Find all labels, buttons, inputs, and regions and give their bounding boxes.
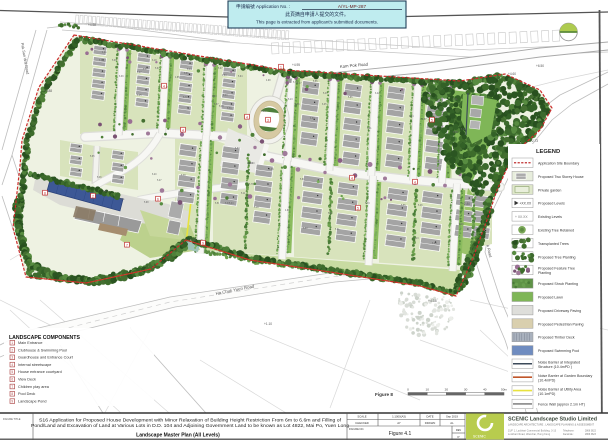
svg-text:SCENIC: SCENIC [473,435,486,439]
svg-text:LANDSCAPE ARCHITECTURE . LANDS: LANDSCAPE ARCHITECTURE . LANDSCAPE PLANN… [508,424,595,427]
svg-text:P: P [457,435,459,439]
svg-text:5.09: 5.09 [112,60,117,62]
svg-text:6.39: 6.39 [119,76,124,78]
svg-text:5.87: 5.87 [422,119,427,121]
svg-text:4.90: 4.90 [285,210,290,212]
svg-text:House entrance courtyard: House entrance courtyard [18,370,62,374]
svg-text:3: 3 [267,118,269,122]
svg-text:1: 1 [280,65,282,69]
svg-text:Proposed Levels: Proposed Levels [538,202,565,206]
svg-text:4: 4 [414,180,416,184]
svg-text:5.83: 5.83 [103,191,108,193]
svg-text:5.73: 5.73 [365,203,370,205]
svg-text:DRAWN: DRAWN [425,421,435,425]
svg-text:5.60: 5.60 [303,228,308,230]
svg-text:此頁摘自申請人提交的文件。: 此頁摘自申請人提交的文件。 [285,11,349,18]
svg-text:2866 3623: 2866 3623 [585,434,597,436]
svg-text:Structure (10.4mPD ): Structure (10.4mPD ) [538,365,572,369]
svg-text:0: 0 [407,388,409,392]
svg-text:6.22: 6.22 [375,93,380,95]
svg-text:1:1000(A3): 1:1000(A3) [392,415,406,419]
svg-text:5.67: 5.67 [155,68,160,70]
svg-text:5.31: 5.31 [335,229,340,231]
svg-text:Main Entrance: Main Entrance [18,341,42,345]
svg-text:Figure 8: Figure 8 [375,392,393,397]
svg-text:50m: 50m [501,388,507,392]
svg-text:Existing Levels: Existing Levels [538,215,562,219]
svg-text:6.05: 6.05 [99,60,104,62]
svg-text:DATE: DATE [426,415,433,419]
svg-text:Private garden: Private garden [538,188,561,192]
svg-text:Pool Deck: Pool Deck [18,392,35,396]
svg-text:Application Site Boundary: Application Site Boundary [538,162,579,166]
svg-text:4.85: 4.85 [175,77,180,79]
svg-text:CHECKED: CHECKED [355,421,369,425]
svg-text:4: 4 [163,84,165,88]
svg-text:5.63: 5.63 [235,148,240,150]
svg-text:4.98: 4.98 [266,80,271,82]
svg-text:5.32: 5.32 [461,129,466,131]
svg-text:10: 10 [425,388,429,392]
svg-text:5.68: 5.68 [248,163,253,165]
svg-text:+ XX.XX: + XX.XX [515,215,528,219]
svg-text:Proposed Feature Tree: Proposed Feature Tree [538,267,575,271]
svg-text:S16 Application for Proposed H: S16 Application for Proposed House Devel… [39,418,342,423]
svg-text:6.06: 6.06 [269,169,274,171]
svg-text:8: 8 [44,191,46,195]
svg-text:6.13: 6.13 [414,238,419,240]
svg-text:5: 5 [431,118,433,122]
svg-text:5.11: 5.11 [241,193,246,195]
svg-text:30: 30 [464,388,468,392]
svg-text:6.24: 6.24 [432,243,437,245]
svg-text:6.25: 6.25 [137,95,142,97]
svg-text:5.86: 5.86 [184,73,189,75]
svg-text:5.06: 5.06 [97,177,102,179]
svg-text:6.50: 6.50 [310,118,315,120]
svg-text:5.94: 5.94 [238,76,243,78]
svg-text:+4.38: +4.38 [428,299,437,303]
svg-text:Telephone:: Telephone: [563,431,575,433]
svg-text:5.17: 5.17 [297,83,302,85]
svg-text:4.93: 4.93 [212,96,217,98]
svg-text:申請編號 Application No. :: 申請編號 Application No. : [236,3,290,10]
svg-text:6.24: 6.24 [409,116,414,118]
svg-text:6.57: 6.57 [214,104,219,106]
svg-text:8: 8 [11,392,13,396]
svg-text:Proposed Pedestrian Paving: Proposed Pedestrian Paving [538,322,584,326]
svg-text:6.37: 6.37 [127,54,132,56]
svg-text:5: 5 [357,206,359,210]
svg-text:6.06: 6.06 [261,111,266,113]
svg-text:Sep 2019: Sep 2019 [446,415,458,419]
svg-text:5.01: 5.01 [367,128,372,130]
svg-text:(10.1mPD): (10.1mPD) [538,392,555,396]
svg-text:7: 7 [11,385,13,389]
svg-text:REV: REV [456,428,462,432]
svg-text:6: 6 [157,197,159,201]
svg-text:Figure 4.1: Figure 4.1 [389,431,412,437]
svg-text:5.13: 5.13 [288,99,293,101]
svg-text:Proposed Driveway Paving: Proposed Driveway Paving [538,309,581,313]
svg-text:5.51: 5.51 [328,213,333,215]
svg-text:SCENIC Landscape Studio Limite: SCENIC Landscape Studio Limited [508,417,597,423]
svg-text:+2.73: +2.73 [530,139,538,143]
svg-text:5.85: 5.85 [348,97,353,99]
svg-text:+4.70: +4.70 [188,238,196,242]
svg-text:4: 4 [351,176,353,180]
svg-text:6.04: 6.04 [229,203,234,205]
svg-text:6.21: 6.21 [120,199,125,201]
svg-text:4: 4 [11,363,13,367]
svg-text:+4.98: +4.98 [88,23,96,27]
svg-text:6.56: 6.56 [295,104,300,106]
svg-text:4: 4 [246,115,248,119]
svg-text:6.27: 6.27 [143,69,148,71]
svg-text:5.98: 5.98 [144,202,149,204]
svg-text:FIGURE NO.: FIGURE NO. [349,427,364,431]
svg-text:2866 3622: 2866 3622 [585,431,597,433]
svg-text:Planting: Planting [538,271,551,275]
svg-text:1: 1 [11,341,13,345]
svg-text:5.71: 5.71 [183,97,188,99]
svg-text:A/YL-MP-287: A/YL-MP-287 [338,4,367,9]
svg-text:6.43: 6.43 [223,95,228,97]
svg-text:Proposed Two Storey House: Proposed Two Storey House [538,175,584,179]
svg-text:AL: AL [450,421,454,425]
svg-text:5.21: 5.21 [453,99,458,101]
svg-text:+1.10: +1.10 [264,322,272,326]
svg-text:Proposed Lawn: Proposed Lawn [538,296,563,300]
svg-text:Proposed Shrub Planting: Proposed Shrub Planting [538,282,578,286]
svg-text:Proposed Timber Deck: Proposed Timber Deck [538,336,575,340]
svg-text:View Deck: View Deck [18,378,36,382]
svg-text:(10.4mPD): (10.4mPD) [538,378,555,382]
svg-text:5.55: 5.55 [313,81,318,83]
svg-text:Noise Barrier at Garden Bounda: Noise Barrier at Garden Boundary [538,374,593,378]
svg-text:2: 2 [11,348,13,352]
svg-text:5.07: 5.07 [218,68,223,70]
svg-text:6.38: 6.38 [181,175,186,177]
svg-text:4: 4 [182,128,184,132]
svg-text:40: 40 [483,388,487,392]
svg-text:Proposed Swimming Pool: Proposed Swimming Pool [538,349,579,353]
svg-text:2: 2 [92,194,94,198]
svg-text:AY: AY [397,421,401,425]
svg-text:9: 9 [202,241,204,245]
svg-text:5.47: 5.47 [157,180,162,182]
svg-text:5.46: 5.46 [418,205,423,207]
svg-text:4.83: 4.83 [222,75,227,77]
svg-text:6.59: 6.59 [227,108,232,110]
svg-text:Facsimile:: Facsimile: [563,434,574,436]
svg-text:6.44: 6.44 [187,69,192,71]
svg-text:+4.88: +4.88 [44,89,52,93]
svg-text:Clubhouse & Swimming Pool: Clubhouse & Swimming Pool [18,348,67,352]
svg-text:+4.60: +4.60 [508,72,516,76]
svg-text:5.76: 5.76 [249,184,254,186]
svg-text:+2.80: +2.80 [462,202,470,206]
svg-text:5.43: 5.43 [323,93,328,95]
svg-text:+XX.XX: +XX.XX [520,202,532,206]
svg-text:+4.95: +4.95 [292,63,300,67]
svg-text:SCALE: SCALE [357,415,366,419]
svg-text:Proposed Tree Planting: Proposed Tree Planting [538,255,576,259]
svg-text:Pond/Land and Excavation of La: Pond/Land and Excavation of Land at Vari… [31,423,350,428]
svg-text:5.65: 5.65 [90,156,95,158]
svg-text:Landscape Pond: Landscape Pond [18,399,47,403]
svg-text:Guardhouse and Entrance Court: Guardhouse and Entrance Court [18,356,74,360]
svg-text:7: 7 [126,243,128,247]
svg-text:20: 20 [445,388,449,392]
svg-text:LEGEND: LEGEND [536,149,560,155]
svg-text:Noise Barrier at Utility Area: Noise Barrier at Utility Area [538,387,581,391]
svg-text:Lockhart Road, Wanchai, Hong K: Lockhart Road, Wanchai, Hong Kong [508,433,551,436]
svg-text:Noise Barrier at Integrated: Noise Barrier at Integrated [538,361,580,365]
svg-text:6: 6 [11,378,13,382]
svg-text:6.05: 6.05 [322,104,327,106]
svg-text:5.18: 5.18 [254,207,259,209]
svg-text:FIGURE TITLE: FIGURE TITLE [3,417,21,421]
svg-text:Existing Tree Retained: Existing Tree Retained [538,229,574,233]
svg-text:+6.50: +6.50 [536,64,544,68]
svg-text:6.37: 6.37 [137,72,142,74]
svg-text:4.96: 4.96 [102,52,107,54]
svg-text:5.81: 5.81 [300,179,305,181]
svg-text:6.48: 6.48 [459,224,464,226]
svg-text:5.09: 5.09 [219,106,224,108]
svg-text:5.55: 5.55 [401,205,406,207]
svg-text:9: 9 [11,399,13,403]
svg-text:Fence Wall (approx 2.1m HT): Fence Wall (approx 2.1m HT) [538,403,585,407]
svg-text:6.20: 6.20 [152,174,157,176]
svg-text:Transplanted Trees: Transplanted Trees [538,242,569,246]
svg-text:6.18: 6.18 [152,60,157,62]
svg-text:5: 5 [11,370,13,374]
svg-text:Children play area: Children play area [18,385,50,389]
svg-text:31/F 1, Lockhart Commercial Bu: 31/F 1, Lockhart Commercial Building, 3-… [508,430,557,433]
svg-text:Internal streetscape: Internal streetscape [18,363,51,367]
svg-text:Landscape Master Plan (All Lev: Landscape Master Plan (All Levels) [136,433,220,439]
svg-text:This page is extracted from ap: This page is extracted from applicant's … [256,20,378,25]
svg-text:5.51: 5.51 [215,203,220,205]
svg-text:3: 3 [11,356,13,360]
svg-text:6.58: 6.58 [453,132,458,134]
